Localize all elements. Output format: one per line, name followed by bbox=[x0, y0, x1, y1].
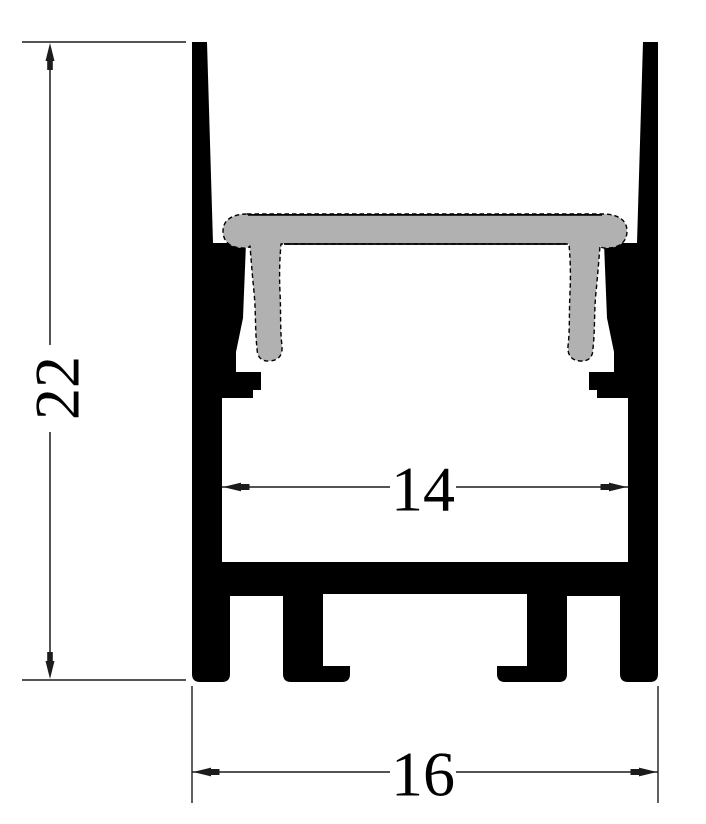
arrow-up-icon bbox=[46, 43, 55, 70]
inner-width-dimension-label: 14 bbox=[391, 454, 455, 525]
overall-width-dimension-label: 16 bbox=[391, 739, 455, 810]
aluminum-profile-body bbox=[192, 42, 658, 682]
technical-drawing-canvas: 22 14 16 bbox=[0, 0, 706, 824]
arrow-left-icon bbox=[223, 483, 250, 492]
arrow-right-icon bbox=[631, 768, 658, 777]
arrow-right-icon bbox=[601, 483, 628, 492]
arrow-down-icon bbox=[46, 652, 55, 679]
dimension-graphics bbox=[22, 42, 658, 803]
diffuser-cover-shape bbox=[223, 214, 627, 361]
diffuser-cover bbox=[223, 214, 627, 361]
height-dimension-label: 22 bbox=[22, 356, 93, 420]
arrow-left-icon bbox=[193, 768, 220, 777]
profile-cross-section-drawing: 22 14 16 bbox=[0, 0, 706, 824]
